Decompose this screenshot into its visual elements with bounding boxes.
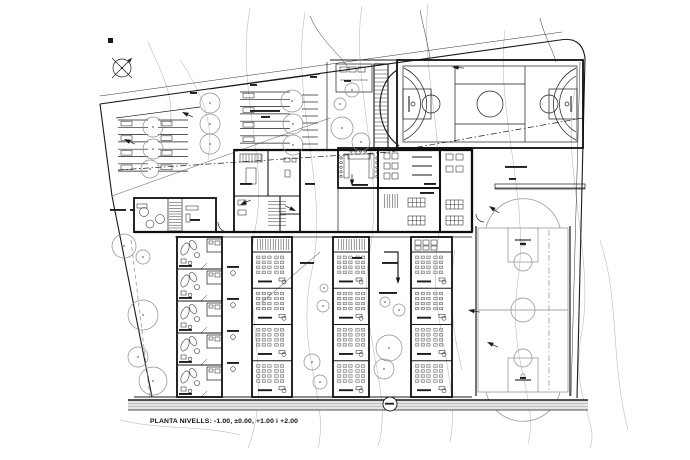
illegible-label [520, 243, 526, 245]
illegible-label [190, 92, 197, 94]
tree-icon [317, 300, 329, 312]
multi-sport-court [397, 60, 583, 148]
arrow-icon [452, 65, 464, 70]
plan-caption: PLANTA NIVELLS: -1.00, ±0.00, +1.00 i +2… [150, 418, 298, 425]
illegible-label [310, 76, 317, 78]
illegible-label [509, 178, 516, 180]
tree-icon [345, 83, 359, 97]
tree-icon [393, 304, 405, 316]
illegible-label [382, 262, 398, 264]
tree-icon [380, 297, 390, 307]
tree-icon [281, 90, 303, 112]
illegible-label [300, 262, 314, 264]
tree-icon [334, 98, 346, 110]
tree-icon [139, 367, 167, 395]
tree-icon [141, 160, 159, 178]
arrow-icon [239, 198, 252, 207]
illegible-label [305, 183, 315, 185]
tree-icon [320, 284, 328, 292]
north-compass-icon [108, 38, 132, 78]
practice-court [476, 199, 570, 422]
illegible-label [130, 209, 135, 211]
arrow-icon [284, 204, 297, 213]
illegible-label [505, 166, 527, 168]
patio-and-stairs [327, 60, 399, 150]
tree-icon [200, 114, 220, 134]
floor-plan-drawing: PLANTA NIVELLS: -1.00, ±0.00, +1.00 i +2… [0, 0, 690, 460]
tree-icon [283, 135, 303, 155]
trees [112, 83, 405, 395]
tree-icon [331, 117, 353, 139]
corridor-labels [227, 266, 239, 371]
illegible-label [110, 209, 126, 211]
tree-icon [376, 335, 402, 361]
illegible-label [352, 257, 362, 259]
road-band [128, 397, 588, 411]
illegible-label [250, 110, 280, 112]
illegible-label [261, 116, 270, 118]
tree-icon [128, 347, 148, 367]
parking-area-west [116, 107, 200, 171]
illegible-label [520, 377, 526, 379]
illegible-label [352, 184, 368, 186]
arrow-icon [396, 272, 400, 284]
illegible-label [250, 84, 257, 86]
leader-lines [262, 10, 556, 302]
dorm-rooms-column [177, 237, 222, 397]
floor-plan-page: PLANTA NIVELLS: -1.00, ±0.00, +1.00 i +2… [0, 0, 690, 460]
tree-icon [128, 300, 158, 330]
arrow-icon [123, 137, 136, 146]
tree-icon [136, 250, 150, 264]
illegible-label [190, 219, 200, 221]
admin-block [134, 148, 585, 232]
arrow-icon [486, 340, 499, 349]
illegible-label [379, 292, 397, 294]
illegible-label [344, 80, 351, 82]
illegible-label [240, 183, 252, 185]
arrow-icon [488, 204, 500, 214]
tree-icon [200, 134, 220, 154]
site-boundary [100, 32, 585, 398]
classroom-wings [134, 237, 472, 397]
illegible-label [420, 192, 434, 194]
parking-area-centre [210, 74, 320, 144]
arrow-icon [181, 110, 194, 119]
microtext-labels [110, 76, 527, 379]
annotation-arrows [123, 65, 500, 349]
illegible-label [424, 183, 436, 185]
